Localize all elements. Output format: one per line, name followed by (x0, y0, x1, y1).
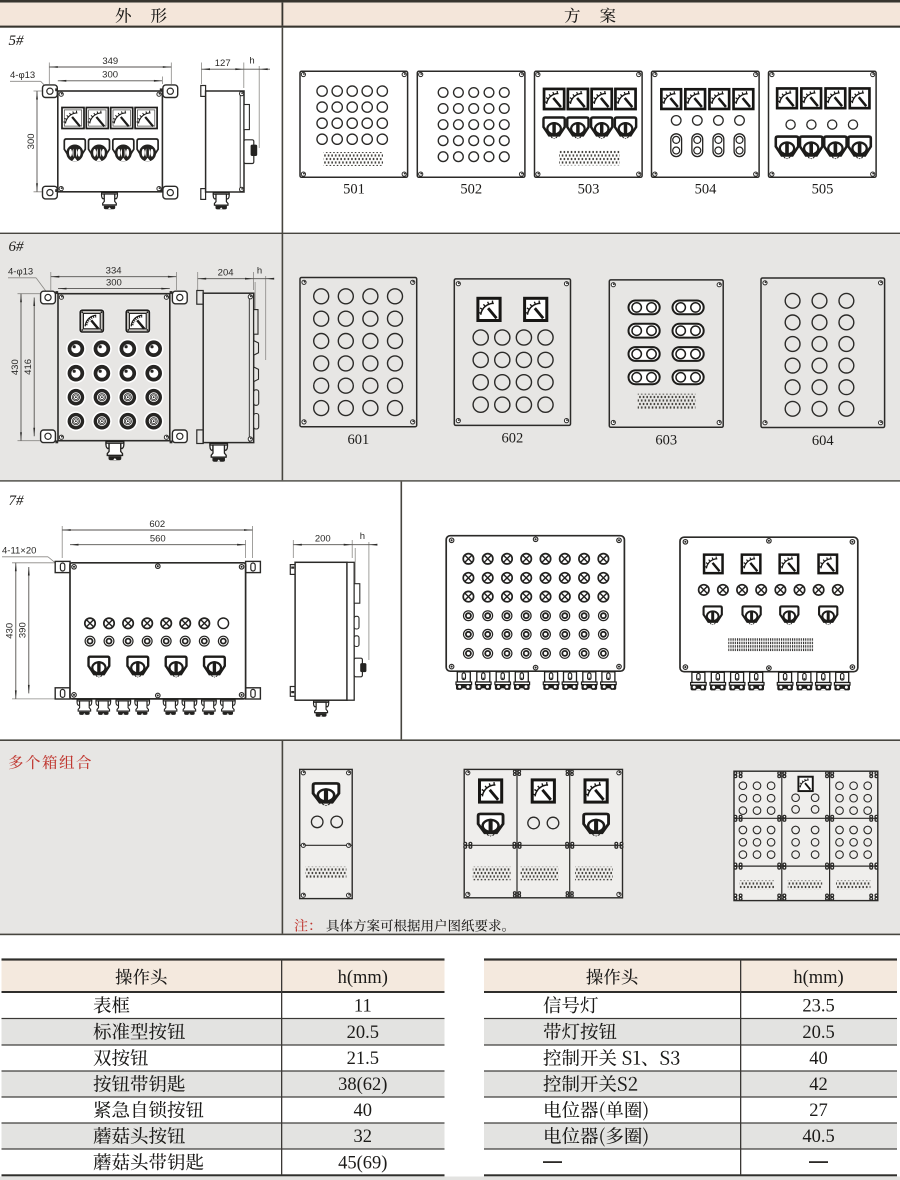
svg-text:390: 390 (18, 622, 29, 638)
svg-text:45(69): 45(69) (338, 1153, 387, 1173)
svg-text:601: 601 (348, 432, 370, 448)
svg-text:127: 127 (215, 58, 231, 69)
svg-text:4-φ13: 4-φ13 (8, 267, 33, 278)
svg-text:6#: 6# (9, 239, 25, 255)
svg-text:560: 560 (150, 534, 166, 545)
svg-text:4-11×20: 4-11×20 (2, 546, 36, 557)
svg-text:38(62): 38(62) (338, 1075, 387, 1095)
svg-text:300: 300 (102, 70, 118, 81)
svg-text:27: 27 (809, 1101, 828, 1121)
svg-text:604: 604 (812, 433, 835, 449)
svg-text:334: 334 (106, 266, 122, 277)
svg-text:501: 501 (343, 182, 365, 198)
svg-text:204: 204 (218, 268, 234, 279)
svg-text:430: 430 (5, 623, 16, 639)
svg-text:504: 504 (695, 182, 718, 198)
svg-text:505: 505 (812, 182, 834, 198)
svg-text:20.5: 20.5 (802, 1023, 834, 1043)
svg-text:602: 602 (502, 431, 524, 447)
svg-text:h: h (249, 56, 254, 67)
svg-text:502: 502 (460, 182, 482, 198)
svg-text:602: 602 (149, 519, 165, 530)
svg-text:300: 300 (106, 277, 122, 288)
svg-text:4-φ13: 4-φ13 (10, 70, 35, 81)
svg-text:42: 42 (809, 1075, 828, 1095)
svg-text:200: 200 (315, 534, 331, 545)
svg-text:5#: 5# (9, 33, 25, 49)
svg-text:21.5: 21.5 (347, 1049, 379, 1069)
svg-text:h(mm): h(mm) (793, 968, 843, 988)
svg-text:11: 11 (354, 997, 372, 1017)
svg-text:7#: 7# (9, 493, 25, 509)
svg-text:430: 430 (10, 359, 21, 375)
svg-text:603: 603 (655, 433, 677, 449)
svg-text:300: 300 (26, 133, 37, 149)
svg-text:503: 503 (578, 182, 600, 198)
svg-text:40: 40 (354, 1101, 373, 1121)
svg-text:h(mm): h(mm) (338, 968, 388, 988)
svg-text:h: h (257, 266, 262, 277)
svg-text:32: 32 (354, 1127, 373, 1147)
svg-text:20.5: 20.5 (347, 1023, 379, 1043)
svg-text:416: 416 (23, 359, 34, 375)
svg-text:40: 40 (809, 1049, 828, 1069)
svg-text:23.5: 23.5 (802, 997, 834, 1017)
svg-text:40.5: 40.5 (802, 1127, 834, 1147)
svg-text:h: h (360, 531, 365, 542)
svg-text:349: 349 (102, 56, 118, 67)
